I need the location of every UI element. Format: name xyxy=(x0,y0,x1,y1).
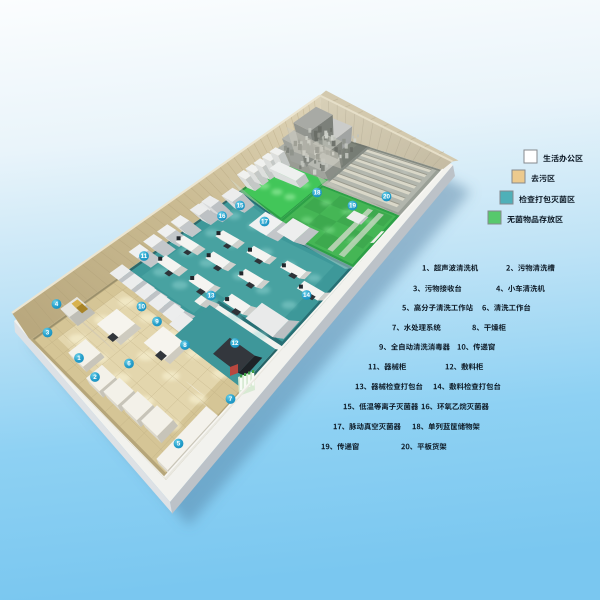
svg-text:7: 7 xyxy=(229,396,233,403)
svg-text:15: 15 xyxy=(236,203,244,210)
svg-text:17: 17 xyxy=(261,219,269,226)
svg-text:3: 3 xyxy=(46,330,50,337)
svg-text:2: 2 xyxy=(93,374,97,381)
svg-text:20: 20 xyxy=(383,194,391,201)
svg-text:6: 6 xyxy=(127,361,131,368)
svg-text:11: 11 xyxy=(141,253,148,260)
svg-text:19: 19 xyxy=(349,203,357,210)
svg-text:5: 5 xyxy=(177,441,181,448)
svg-text:16: 16 xyxy=(218,213,226,220)
svg-text:9: 9 xyxy=(155,319,159,326)
svg-text:12: 12 xyxy=(231,340,239,347)
svg-text:4: 4 xyxy=(55,301,59,308)
svg-text:14: 14 xyxy=(303,292,311,299)
svg-text:18: 18 xyxy=(313,190,321,197)
svg-text:8: 8 xyxy=(183,342,187,349)
svg-text:10: 10 xyxy=(138,304,146,311)
svg-text:1: 1 xyxy=(77,355,81,362)
svg-text:13: 13 xyxy=(207,293,215,300)
